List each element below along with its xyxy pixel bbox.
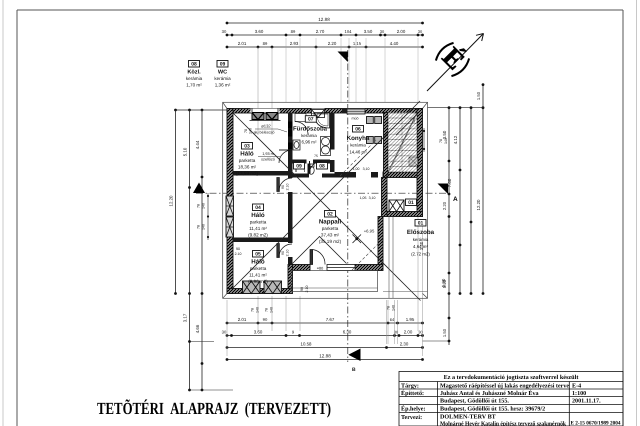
svg-text:12.88: 12.88 (319, 354, 331, 359)
svg-text:2.20: 2.20 (442, 201, 447, 210)
svg-text:90: 90 (263, 317, 268, 322)
svg-text:Tárgy:: Tárgy: (401, 382, 419, 389)
svg-text:(13,59 m2): (13,59 m2) (236, 171, 259, 176)
svg-text:03: 03 (244, 144, 250, 150)
svg-text:11,41 m²: 11,41 m² (249, 273, 267, 278)
svg-text:E 2-15 0670/1989 2004: E 2-15 0670/1989 2004 (571, 421, 621, 426)
svg-text:75: 75 (314, 154, 318, 158)
svg-text:5.10: 5.10 (183, 147, 188, 156)
svg-text:Építtető:: Építtető: (401, 389, 424, 397)
svg-text:3,10: 3,10 (363, 167, 370, 171)
svg-text:12.88: 12.88 (318, 17, 330, 22)
svg-text:Ez a tervdokumentáció jogtiszt: Ez a tervdokumentáció jogtiszta szoftver… (444, 374, 580, 381)
svg-text:10.58: 10.58 (301, 342, 313, 347)
svg-text:4,64 m²: 4,64 m² (413, 244, 428, 249)
svg-text:kerámia: kerámia (301, 133, 317, 138)
svg-text:14,46 m²: 14,46 m² (349, 150, 367, 155)
svg-text:kerámia: kerámia (214, 76, 231, 81)
svg-text:4.40: 4.40 (390, 41, 399, 46)
svg-text:4.66: 4.66 (195, 324, 200, 333)
svg-text:78: 78 (387, 306, 391, 310)
svg-text:kerámia: kerámia (413, 237, 429, 242)
svg-text:90: 90 (300, 287, 304, 291)
svg-text:4.44: 4.44 (195, 140, 200, 149)
svg-text:08: 08 (191, 62, 197, 68)
svg-text:alu béléscső: alu béléscső (253, 131, 274, 135)
svg-text:2.10: 2.10 (235, 252, 242, 256)
svg-text:12.20: 12.20 (476, 199, 481, 211)
svg-text:parketta: parketta (250, 266, 267, 271)
svg-text:09: 09 (296, 164, 302, 170)
svg-text:7.60: 7.60 (447, 178, 452, 187)
svg-text:2.00: 2.00 (404, 330, 413, 335)
svg-text:140: 140 (256, 307, 260, 313)
svg-text:1.15: 1.15 (353, 41, 362, 46)
svg-text:E-4: E-4 (572, 382, 581, 389)
svg-text:2.10: 2.10 (305, 286, 309, 293)
svg-text:parketta: parketta (250, 220, 267, 225)
svg-text:90: 90 (236, 247, 240, 251)
svg-text:3.50: 3.50 (442, 130, 447, 139)
svg-text:(2.72 m2): (2.72 m2) (411, 252, 430, 257)
svg-text:78: 78 (251, 308, 255, 312)
svg-text:2.01: 2.01 (238, 317, 247, 322)
svg-text:7.67: 7.67 (326, 317, 335, 322)
svg-text:08: 08 (319, 164, 325, 170)
svg-text:Fürdőszoba: Fürdőszoba (293, 126, 328, 133)
svg-text:30: 30 (222, 330, 227, 335)
svg-text:Budapest, Gödöllői út 155. hrs: Budapest, Gödöllői út 155. hrsz: 39679/2 (440, 406, 545, 413)
svg-text:1.50: 1.50 (442, 328, 447, 337)
svg-text:104: 104 (345, 29, 353, 34)
svg-text:78: 78 (244, 129, 248, 133)
svg-text:140: 140 (249, 128, 253, 134)
svg-text:64: 64 (390, 317, 395, 322)
svg-text:04: 04 (255, 205, 261, 211)
svg-text:12.20: 12.20 (169, 195, 174, 207)
svg-text:78: 78 (197, 204, 201, 208)
svg-text:(35,19 m2): (35,19 m2) (319, 239, 342, 244)
svg-text:2.10: 2.10 (286, 184, 290, 191)
svg-text:140: 140 (202, 203, 206, 209)
svg-text:≡80: ≡80 (317, 266, 323, 270)
svg-text:1.50: 1.50 (476, 91, 481, 100)
svg-text:30: 30 (418, 29, 423, 34)
svg-text:Magastető ráépítéssel új lakás: Magastető ráépítéssel új lakás engedélye… (440, 382, 569, 389)
svg-text:11,41 m²: 11,41 m² (249, 226, 267, 231)
svg-text:6,96 m²: 6,96 m² (302, 140, 317, 145)
svg-text:05: 05 (255, 252, 261, 258)
svg-text:parketta: parketta (322, 226, 339, 231)
svg-text:B: B (352, 367, 356, 373)
svg-text:1,36 m²: 1,36 m² (215, 83, 231, 88)
svg-text:kerámia: kerámia (350, 143, 366, 148)
svg-text:(9.82 m2): (9.82 m2) (248, 233, 268, 238)
svg-text:Háló: Háló (251, 212, 265, 219)
svg-text:01: 01 (408, 200, 414, 206)
svg-text:140: 140 (270, 307, 274, 313)
svg-text:2.01: 2.01 (238, 41, 247, 46)
svg-text:140: 140 (444, 138, 448, 144)
svg-text:2.93: 2.93 (290, 41, 299, 46)
svg-text:szellőző: szellőző (261, 158, 275, 162)
svg-text:Háló: Háló (240, 151, 254, 158)
svg-text:+6.95: +6.95 (364, 229, 375, 234)
svg-text:01: 01 (418, 221, 424, 227)
svg-text:4.12: 4.12 (453, 135, 458, 144)
svg-text:90: 90 (281, 185, 285, 189)
svg-text:07: 07 (308, 117, 314, 123)
svg-text:140: 140 (392, 305, 396, 311)
svg-text:1:100: 1:100 (572, 390, 586, 397)
svg-text:Előszoba: Előszoba (407, 229, 435, 236)
svg-text:1,00: 1,00 (353, 167, 360, 171)
svg-text:1,93 m: 1,93 m (262, 152, 274, 156)
svg-text:6.30: 6.30 (343, 330, 352, 335)
svg-text:2.20: 2.20 (328, 41, 337, 46)
svg-text:90: 90 (281, 251, 285, 255)
svg-text:1,70 m²: 1,70 m² (186, 83, 202, 88)
svg-text:Molnárné Hevér Katalin építész: Molnárné Hevér Katalin építész tervező s… (440, 420, 567, 426)
svg-text:Budapest, Gödöllői út 155.: Budapest, Gödöllői út 155. (440, 398, 509, 405)
svg-text:5.20: 5.20 (442, 279, 447, 288)
svg-text:A: A (453, 196, 458, 203)
svg-text:1,05: 1,05 (360, 196, 367, 200)
svg-text:2001.11.17.: 2001.11.17. (572, 398, 601, 405)
svg-text:WC: WC (218, 70, 227, 76)
svg-text:ø132: ø132 (261, 124, 271, 129)
svg-text:TETÕTÉRI ALAPRAJZ (TERVEZETT: TETÕTÉRI ALAPRAJZ (TERVEZETT) (97, 399, 331, 418)
svg-text:2.10: 2.10 (286, 250, 290, 257)
svg-text:78: 78 (439, 139, 443, 143)
svg-text:02: 02 (327, 212, 333, 218)
svg-text:89: 89 (263, 41, 268, 46)
svg-text:3.60: 3.60 (255, 29, 264, 34)
svg-text:műö: műö (352, 117, 359, 121)
svg-text:18,36 m²: 18,36 m² (238, 165, 257, 170)
svg-text:2.30: 2.30 (400, 342, 409, 347)
svg-text:1.95: 1.95 (406, 317, 415, 322)
svg-text:kerámia: kerámia (186, 76, 203, 81)
svg-text:37,43 m²: 37,43 m² (321, 233, 340, 238)
svg-text:3.60: 3.60 (254, 330, 263, 335)
svg-text:30: 30 (222, 29, 227, 34)
svg-text:(6,96 m2): (6,96 m2) (248, 279, 268, 284)
svg-text:3.17: 3.17 (183, 313, 188, 322)
svg-text:Közl.: Közl. (187, 69, 201, 76)
svg-text:78: 78 (197, 225, 201, 229)
svg-text:parketta: parketta (239, 158, 256, 163)
svg-text:Tervezi:: Tervezi: (401, 414, 422, 421)
svg-text:140: 140 (202, 224, 206, 230)
svg-text:30: 30 (380, 29, 385, 34)
svg-text:3,10: 3,10 (369, 196, 376, 200)
svg-text:Konyha: Konyha (347, 135, 370, 142)
svg-text:Juhász Antal és Juhászné Molná: Juhász Antal és Juhászné Molnár Éva (440, 389, 539, 397)
svg-text:Ép.helye:: Ép.helye: (401, 405, 426, 413)
svg-text:78: 78 (265, 308, 269, 312)
svg-text:2.70: 2.70 (316, 29, 325, 34)
svg-text:Háló: Háló (251, 259, 265, 266)
svg-text:06: 06 (355, 127, 361, 133)
svg-text:2.00: 2.00 (397, 29, 406, 34)
svg-text:09: 09 (220, 62, 226, 68)
svg-text:DOLMEN-TERV BT: DOLMEN-TERV BT (440, 413, 496, 420)
svg-text:3.50: 3.50 (364, 29, 373, 34)
svg-text:89: 89 (291, 29, 296, 34)
svg-text:Nappali: Nappali (319, 219, 342, 226)
